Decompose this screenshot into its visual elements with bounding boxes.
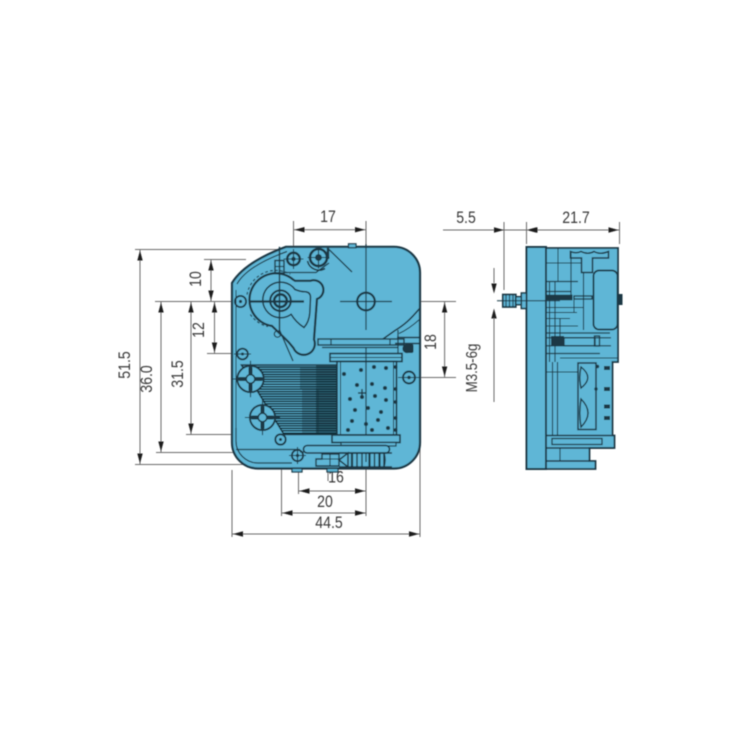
svg-text:51.5: 51.5 xyxy=(115,351,134,379)
svg-text:21.7: 21.7 xyxy=(562,208,590,227)
svg-text:18: 18 xyxy=(421,334,440,350)
svg-text:17: 17 xyxy=(320,207,336,226)
svg-text:36.0: 36.0 xyxy=(137,365,156,393)
svg-text:M3.5-6g: M3.5-6g xyxy=(464,344,481,393)
svg-text:31.5: 31.5 xyxy=(168,360,187,388)
svg-text:10: 10 xyxy=(186,271,205,287)
svg-text:44.5: 44.5 xyxy=(315,513,343,532)
svg-text:12: 12 xyxy=(189,322,208,338)
svg-text:20: 20 xyxy=(317,492,333,511)
svg-text:5.5: 5.5 xyxy=(456,208,476,227)
